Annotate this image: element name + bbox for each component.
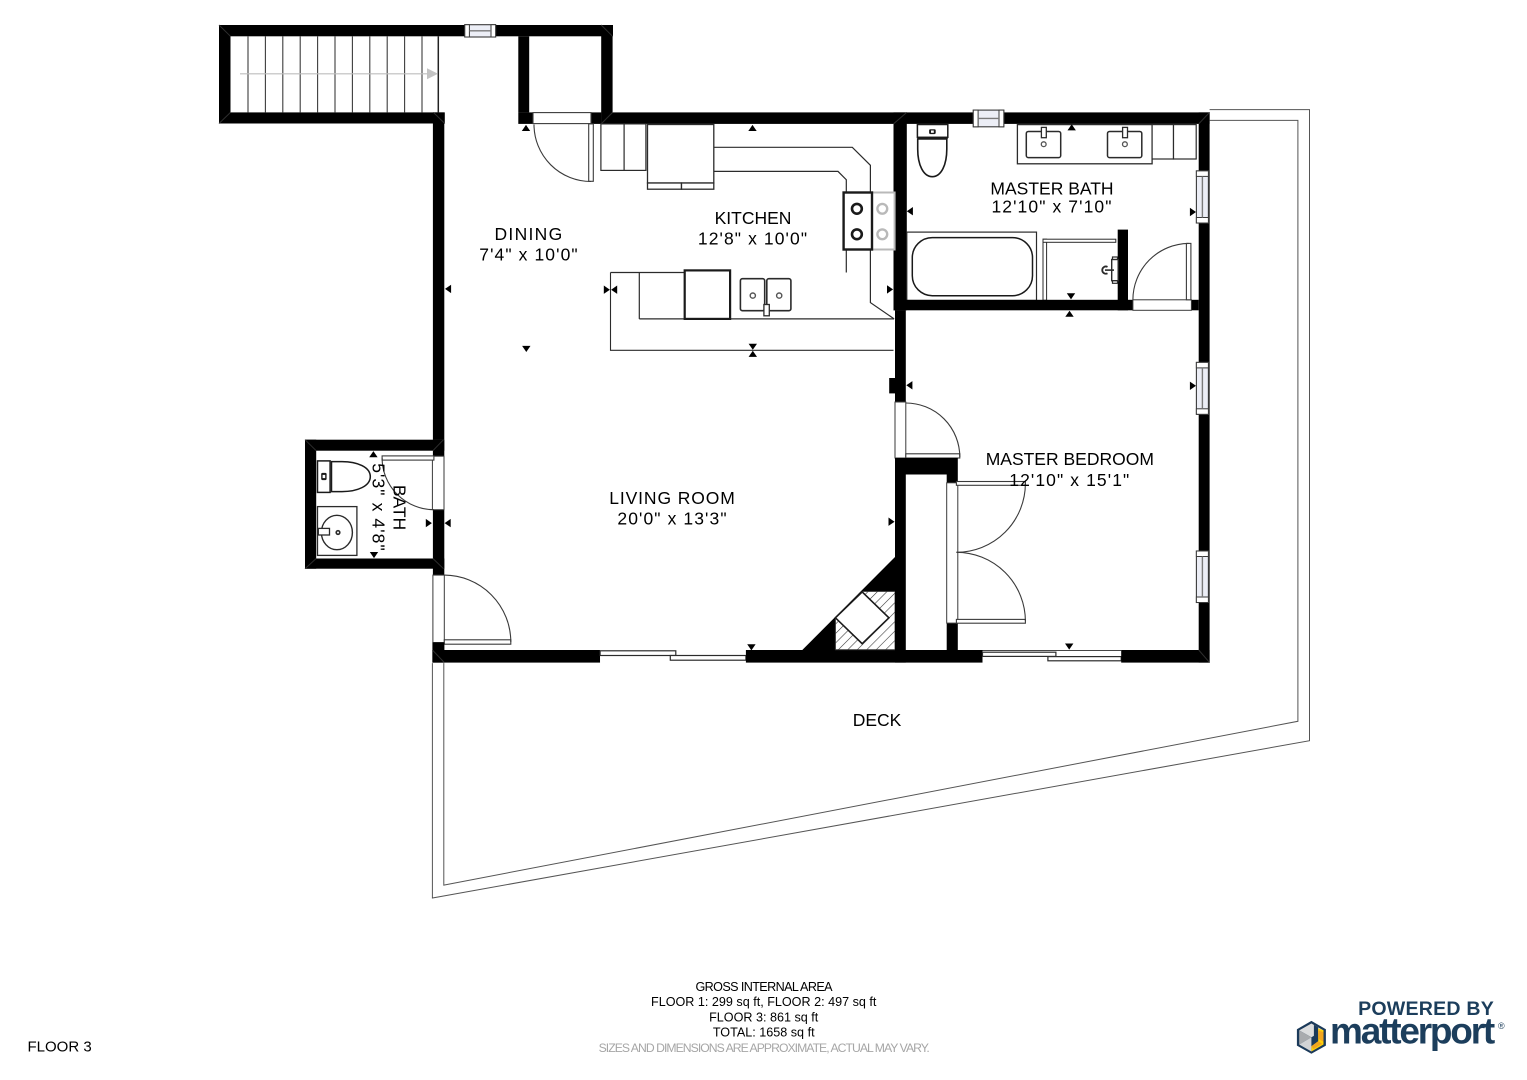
svg-text:MASTER BEDROOM: MASTER BEDROOM xyxy=(986,449,1154,469)
svg-text:DECK: DECK xyxy=(853,710,902,730)
svg-text:12'10" x 15'1": 12'10" x 15'1" xyxy=(1009,470,1130,490)
svg-text:KITCHEN: KITCHEN xyxy=(715,208,792,228)
svg-text:FLOOR 1: 299 sq ft, FLOOR 2: 4: FLOOR 1: 299 sq ft, FLOOR 2: 497 sq ft xyxy=(651,995,877,1009)
svg-text:20'0" x 13'3": 20'0" x 13'3" xyxy=(617,509,727,529)
svg-text:TOTAL: 1658 sq ft: TOTAL: 1658 sq ft xyxy=(713,1026,815,1040)
svg-text:12'10" x 7'10": 12'10" x 7'10" xyxy=(991,197,1112,217)
svg-text:7'4" x 10'0": 7'4" x 10'0" xyxy=(479,245,578,265)
svg-text:®: ® xyxy=(1498,1021,1505,1031)
svg-text:GROSS INTERNAL AREA: GROSS INTERNAL AREA xyxy=(695,980,833,994)
svg-text:FLOOR 3: 861 sq ft: FLOOR 3: 861 sq ft xyxy=(709,1010,819,1024)
svg-text:FLOOR 3: FLOOR 3 xyxy=(28,1039,92,1056)
svg-text:12'8" x 10'0": 12'8" x 10'0" xyxy=(698,229,808,249)
svg-text:SIZES AND DIMENSIONS ARE APPRO: SIZES AND DIMENSIONS ARE APPROXIMATE, AC… xyxy=(599,1041,930,1055)
svg-text:MASTER BATH: MASTER BATH xyxy=(990,179,1113,199)
svg-text:LIVING ROOM: LIVING ROOM xyxy=(609,488,736,508)
svg-text:matterport: matterport xyxy=(1330,1011,1495,1052)
svg-text:DINING: DINING xyxy=(494,224,563,244)
